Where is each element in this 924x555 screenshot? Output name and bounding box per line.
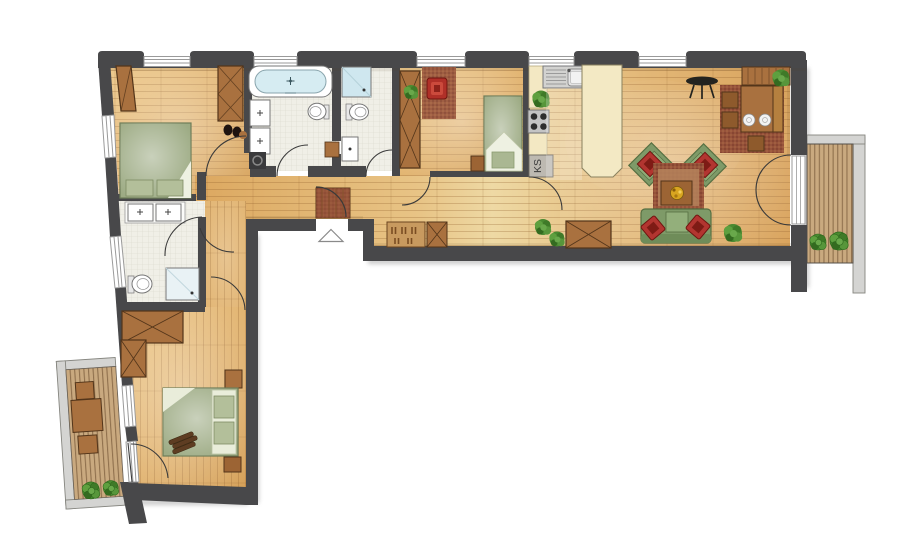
svg-text:KS: KS: [532, 159, 544, 173]
